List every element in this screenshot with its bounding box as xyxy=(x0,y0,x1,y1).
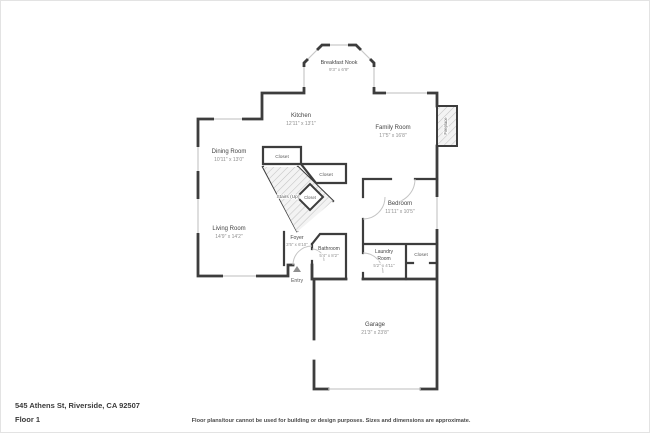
room-dims-bathroom: 5'4" x 8'2" xyxy=(319,253,339,258)
label-entry: Entry xyxy=(291,278,304,284)
floorplan-page: Breakfast Nook 9'3" x 6'9" Kitchen 12'11… xyxy=(0,0,650,433)
room-label-bedroom: Bedroom xyxy=(388,201,412,207)
exterior-walls xyxy=(198,45,437,389)
room-label-garage: Garage xyxy=(365,322,386,328)
room-dims-bedroom: 11'11" x 10'5" xyxy=(385,209,415,215)
room-label-dining-room: Dining Room xyxy=(212,149,247,155)
label-closet-right: Closet xyxy=(319,172,333,178)
room-dims-laundry: 5'2" x 4'11" xyxy=(373,263,395,268)
room-label-laundry-1: Laundry xyxy=(375,249,394,255)
room-dims-garage: 21'3" x 23'8" xyxy=(361,330,389,336)
room-label-foyer: Foyer xyxy=(290,235,304,241)
room-label-family-room: Family Room xyxy=(375,125,410,131)
footer-floor-label: Floor 1 xyxy=(15,415,40,424)
room-dims-dining-room: 10'11" x 13'0" xyxy=(214,157,244,163)
room-label-living-room: Living Room xyxy=(212,226,245,232)
footer-disclaimer: Floor plans/tour cannot be used for buil… xyxy=(192,418,471,424)
label-stairs: Stairs (Up) xyxy=(277,194,300,200)
windows xyxy=(198,45,437,389)
label-fireplace: Fireplace xyxy=(443,117,448,135)
room-dims-breakfast-nook: 9'3" x 6'9" xyxy=(329,67,349,72)
room-label-kitchen: Kitchen xyxy=(291,113,311,119)
room-label-breakfast-nook: Breakfast Nook xyxy=(321,60,358,66)
label-closet-laundry: Closet xyxy=(414,252,428,258)
label-closet-mid: Closet xyxy=(304,195,317,200)
room-dims-living-room: 14'9" x 14'2" xyxy=(215,234,243,240)
room-dims-foyer: 3'5" x 6'10" xyxy=(286,242,308,247)
entry-arrow-icon xyxy=(293,266,301,272)
room-label-bathroom: Bathroom xyxy=(318,246,340,252)
room-dims-family-room: 17'5" x 16'8" xyxy=(379,133,407,139)
room-label-laundry-2: Room xyxy=(377,256,390,262)
label-closet-upper: Closet xyxy=(275,154,289,160)
footer-address: 545 Athens St, Riverside, CA 92507 xyxy=(15,401,140,410)
room-dims-kitchen: 12'11" x 13'1" xyxy=(286,121,316,127)
floor-plan-drawing: Breakfast Nook 9'3" x 6'9" Kitchen 12'11… xyxy=(1,1,650,433)
